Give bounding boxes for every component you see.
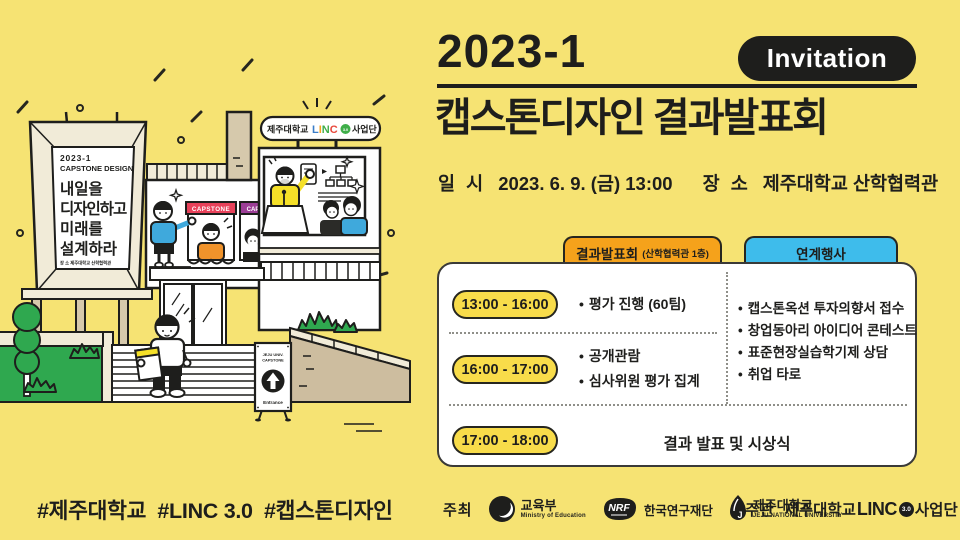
poster: 2023-1 CAPSTONE DESIGN 내일을 디자인하고 미래를 설계하… (0, 0, 960, 540)
tab-presentation-sub: (산학협력관 1층) (642, 246, 709, 260)
organizer-prefix: 제주대학교 (785, 498, 856, 520)
chimney (227, 112, 251, 180)
banner-footer: 장 소 제주대학교 산학협력관 (60, 260, 111, 267)
invitation-badge: Invitation (738, 36, 916, 81)
organizer-logo-text: 제주대학교 LINC 3.0 사업단 (785, 498, 958, 520)
svg-text:LINC: LINC (312, 124, 338, 136)
organizer-linc: LINC (857, 499, 897, 520)
linc-30-badge-icon: 3.0 (899, 502, 914, 517)
venue-label: 장 소 (703, 170, 751, 196)
flag-linc-c: C (330, 124, 338, 136)
capstone-sign-2: CAP (247, 207, 260, 213)
side-event-item: 창업동아리 아이디어 콘테스트 (738, 320, 917, 342)
tab-presentation-label: 결과발표회 (576, 243, 638, 263)
time-pill-1: 13:00 - 16:00 (452, 290, 558, 319)
organizer-label: 주관 (745, 499, 775, 520)
entrance-sign-line2: CAPSTONE (262, 358, 284, 363)
title-underline (437, 84, 917, 88)
venue-value: 제주대학교 산학협력관 (763, 170, 938, 196)
side-event-item: 표준현장실습학기제 상담 (738, 342, 917, 364)
tab-side-label: 연계행사 (796, 243, 846, 263)
banner-year: 2023-1 (60, 153, 91, 163)
banner-capstone: CAPSTONE DESIGN (60, 164, 133, 173)
date-label: 일 시 (438, 170, 486, 196)
entrance-sign-label: Entrance (263, 400, 283, 405)
moe-sub: Ministry of Education (521, 513, 586, 520)
flag-30: 3.0 (343, 128, 348, 132)
banner-line2: 디자인하고 (60, 200, 127, 218)
semester-title: 2023-1 (437, 28, 586, 74)
date-value: 2023. 6. 9. (금) 13:00 (498, 170, 672, 196)
organizer-suffix: 사업단 (915, 498, 958, 520)
banner-line1: 내일을 (60, 180, 103, 198)
billboard-tower: 2023-1 CAPSTONE DESIGN 내일을 디자인하고 미래를 설계하… (22, 112, 152, 346)
slope-wall (290, 312, 410, 402)
event-info-line: 일 시 2023. 6. 9. (금) 13:00 장 소 제주대학교 산학협력… (438, 170, 938, 196)
side-event-item: 취업 타로 (738, 364, 917, 386)
linc-flag: 제주대학교 LINC 3.0 사업단 (261, 98, 380, 140)
footer-organizer-group: 주관 제주대학교 LINC 3.0 사업단 (745, 487, 958, 531)
banner-line4: 설계하라 (60, 239, 118, 258)
flag-suffix: 사업단 (352, 124, 378, 135)
entrance-sign: JEJU UNIV. CAPSTONE Entrance (255, 343, 291, 422)
moe-logo: 교육부 Ministry of Education (488, 495, 586, 523)
nrf-abbr: NRF (608, 502, 630, 514)
hashtag-line-1: #제주대학교 #LINC 3.0 #캡스톤디자인 (37, 494, 393, 525)
lawn (0, 303, 102, 402)
ground-dashes (344, 424, 382, 431)
dotted-divider (449, 404, 907, 406)
right-building: 제주대학교 LINC 3.0 사업단 (259, 98, 380, 330)
time-pill-3: 17:00 - 18:00 (452, 426, 558, 455)
banner-line3: 미래를 (60, 220, 103, 238)
moe-logo-icon (488, 495, 516, 523)
event-title: 캡스톤디자인 결과발표회 (435, 95, 935, 141)
moe-name: 교육부 (521, 499, 586, 513)
flag-linc-n: N (322, 124, 330, 136)
nrf-logo-icon: NRF (601, 495, 639, 523)
nrf-logo: NRF 한국연구재단 (601, 495, 713, 523)
host-label: 주최 (443, 499, 473, 520)
dotted-divider (449, 332, 717, 334)
schedule-item: 심사위원 평가 집계 (579, 371, 700, 391)
hashtags: #제주대학교 #LINC 3.0 #캡스톤디자인 #CAPSTONE DESIG… (37, 444, 393, 540)
side-event-item: 캡스톤옥션 투자의향서 접수 (738, 298, 917, 320)
schedule-card: 13:00 - 16:00 평가 진행 (60팀) 16:00 - 17:00 … (437, 262, 917, 467)
presentation-window (262, 157, 367, 235)
finale-text: 결과 발표 및 시상식 (569, 432, 885, 454)
schedule-items: 공개관람 심사위원 평가 집계 (579, 346, 700, 391)
invitation-label: Invitation (767, 43, 888, 74)
time-pill-2: 16:00 - 17:00 (452, 355, 558, 384)
schedule-item: 공개관람 (579, 346, 700, 366)
schedule-item: 평가 진행 (60팀) (579, 294, 686, 314)
flag-prefix: 제주대학교 (267, 124, 308, 135)
side-events-list: 캡스톤옥션 투자의향서 접수 창업동아리 아이디어 콘테스트 표준현장실습학기제… (738, 298, 917, 386)
svg-text:J: J (737, 510, 742, 520)
entrance-sign-line1: JEJU UNIV. (263, 352, 284, 357)
dotted-divider-vertical (726, 272, 728, 404)
nrf-name: 한국연구재단 (644, 500, 713, 519)
capstone-sign-1: CAPSTONE (192, 206, 230, 213)
